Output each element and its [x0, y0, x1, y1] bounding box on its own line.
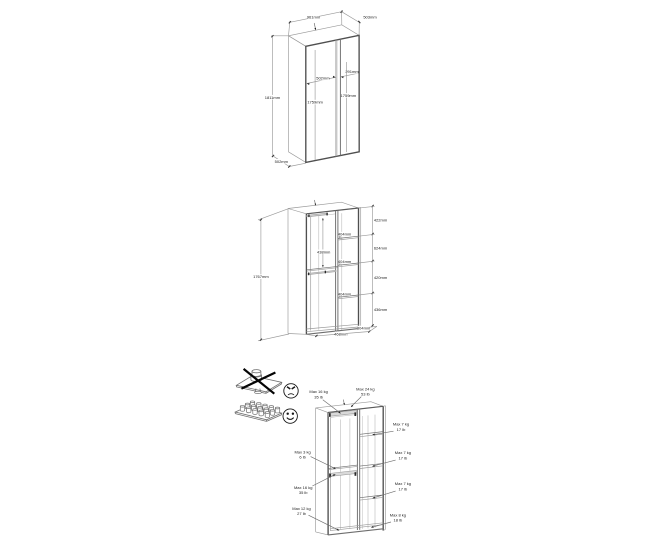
svg-text:404mm: 404mm [338, 259, 352, 264]
svg-text:17 lb: 17 lb [399, 455, 408, 460]
svg-text:503mm: 503mm [363, 15, 377, 20]
svg-text:1811mm: 1811mm [265, 95, 281, 100]
svg-text:53 lb: 53 lb [361, 392, 370, 397]
svg-text:961mm: 961mm [307, 14, 321, 19]
svg-text:422mm: 422mm [374, 218, 388, 223]
svg-text:17 lb: 17 lb [397, 427, 406, 432]
svg-text:17 lb: 17 lb [399, 486, 408, 491]
svg-text:1767mm: 1767mm [253, 274, 269, 279]
svg-text:35 lb: 35 lb [299, 490, 308, 495]
svg-text:291mm: 291mm [345, 69, 359, 74]
svg-text:436mm: 436mm [374, 307, 388, 312]
svg-text:304mm: 304mm [357, 326, 371, 331]
svg-text:35 lb: 35 lb [314, 394, 323, 399]
svg-text:6 lb: 6 lb [299, 455, 306, 460]
svg-text:404mm: 404mm [338, 232, 352, 237]
svg-text:502mm: 502mm [275, 159, 289, 164]
svg-text:420mm: 420mm [374, 275, 388, 280]
svg-text:502mm: 502mm [316, 76, 330, 81]
svg-text:1759mm: 1759mm [341, 93, 357, 98]
svg-text:18 lb: 18 lb [394, 518, 403, 523]
svg-text:27 lb: 27 lb [297, 511, 306, 516]
svg-text:438mm: 438mm [317, 249, 331, 254]
svg-text:468mm: 468mm [334, 331, 348, 336]
svg-text:404mm: 404mm [338, 291, 352, 296]
svg-text:624mm: 624mm [374, 245, 388, 250]
svg-text:1759mm: 1759mm [307, 100, 323, 105]
